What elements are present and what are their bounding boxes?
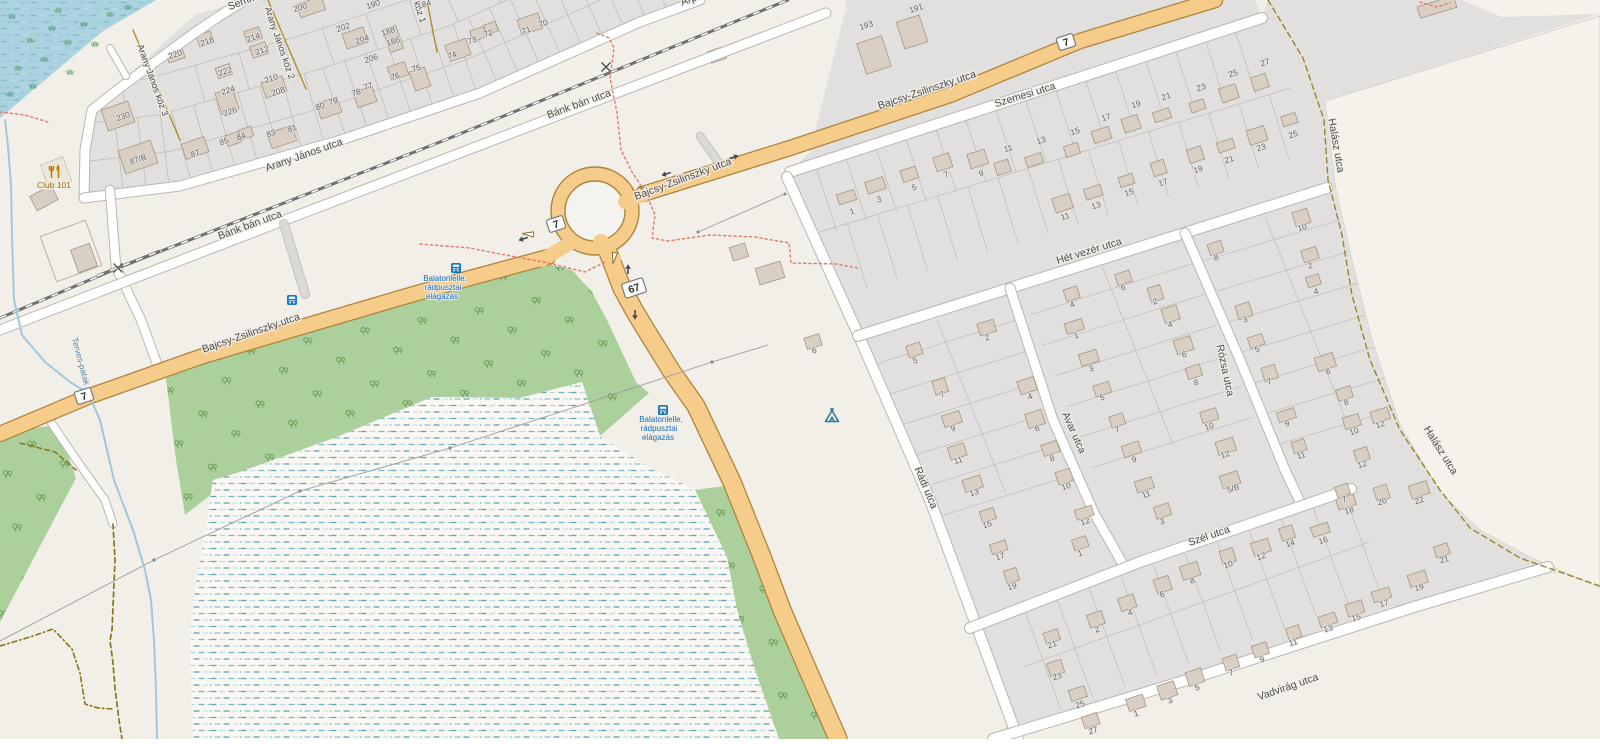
svg-text:Balatonlelle,: Balatonlelle, (639, 415, 683, 424)
svg-text:elágazás: elágazás (642, 433, 674, 442)
svg-text:Club 101: Club 101 (37, 180, 71, 190)
svg-text:rádpusztai: rádpusztai (425, 283, 462, 292)
svg-text:elágazás: elágazás (426, 292, 458, 301)
svg-text:Balatonlelle,: Balatonlelle, (423, 274, 467, 283)
svg-text:rádpusztai: rádpusztai (641, 424, 678, 433)
